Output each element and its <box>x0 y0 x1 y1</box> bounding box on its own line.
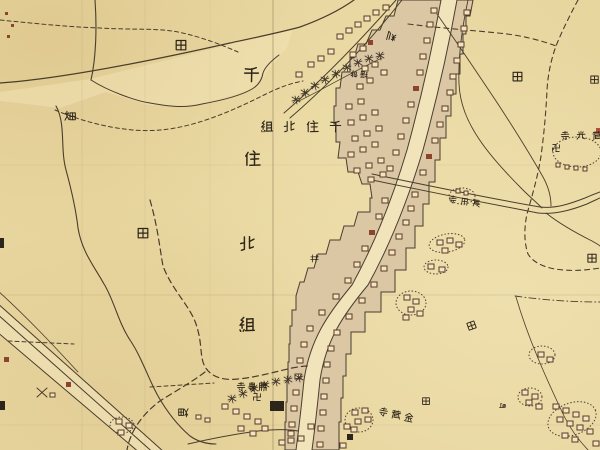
building-marker <box>297 358 303 363</box>
building-marker <box>360 115 366 120</box>
building-marker <box>348 120 354 125</box>
building-marker <box>371 282 377 287</box>
building-marker <box>318 56 324 61</box>
building-marker <box>360 147 366 152</box>
building-marker <box>593 441 599 446</box>
building-marker <box>413 86 419 91</box>
building-marker <box>458 42 464 47</box>
building-marker <box>355 22 361 27</box>
building-marker <box>427 22 433 27</box>
building-marker <box>296 72 302 77</box>
building-marker <box>373 10 379 15</box>
building-marker <box>360 46 366 51</box>
building-marker <box>447 90 453 95</box>
building-marker <box>577 425 583 430</box>
building-marker <box>547 357 553 362</box>
building-marker <box>317 442 323 447</box>
building-marker <box>403 220 409 225</box>
building-marker <box>291 406 297 411</box>
building-marker <box>196 415 201 419</box>
building-marker <box>557 417 563 422</box>
building-marker <box>454 58 460 63</box>
building-marker <box>464 10 470 15</box>
building-marker <box>116 419 122 424</box>
historical-map-canvas: 千住北組 <box>0 0 600 450</box>
building-marker <box>562 433 568 438</box>
building-marker <box>357 84 363 89</box>
building-marker <box>456 189 460 193</box>
building-marker <box>337 34 343 39</box>
building-marker <box>417 311 423 316</box>
building-marker <box>308 424 314 429</box>
building-marker <box>553 404 559 409</box>
building-marker <box>345 278 351 283</box>
building-marker <box>408 102 414 107</box>
building-marker <box>346 104 352 109</box>
building-marker <box>447 238 453 243</box>
building-marker <box>563 408 569 413</box>
building-marker <box>334 330 340 335</box>
building-marker <box>424 38 430 43</box>
building-marker <box>205 418 210 422</box>
building-marker <box>522 390 528 395</box>
building-marker <box>307 326 313 331</box>
building-marker <box>383 5 389 10</box>
building-marker <box>396 234 402 239</box>
building-marker <box>574 166 578 170</box>
building-marker <box>222 404 228 409</box>
building-marker <box>318 426 324 431</box>
building-marker <box>583 167 587 171</box>
building-marker <box>308 62 314 67</box>
building-marker <box>355 419 361 424</box>
building-marker <box>437 240 443 245</box>
building-marker <box>118 430 124 435</box>
building-marker <box>50 393 55 397</box>
building-marker <box>567 421 573 426</box>
building-marker <box>354 168 360 173</box>
building-marker <box>398 134 404 139</box>
building-marker <box>376 214 382 219</box>
building-marker <box>428 264 434 269</box>
building-marker <box>368 40 373 45</box>
building-marker <box>11 24 14 27</box>
building-marker <box>408 206 414 211</box>
building-marker <box>380 172 386 177</box>
building-marker <box>376 126 382 131</box>
building-marker <box>359 298 365 303</box>
building-marker <box>442 248 448 253</box>
building-marker <box>389 250 395 255</box>
building-marker <box>369 230 375 235</box>
building-marker <box>366 163 372 168</box>
building-marker <box>556 163 560 167</box>
building-marker <box>279 440 285 445</box>
building-marker <box>352 410 358 415</box>
building-marker <box>420 170 426 175</box>
building-marker <box>288 438 294 443</box>
building-marker <box>368 177 374 182</box>
building-marker <box>328 346 334 351</box>
building-marker <box>347 434 353 440</box>
map-svg <box>0 0 600 450</box>
building-marker <box>381 70 387 75</box>
building-marker <box>354 262 360 267</box>
building-marker <box>378 158 384 163</box>
building-marker <box>408 307 414 312</box>
building-marker <box>464 191 468 195</box>
building-marker <box>5 12 8 15</box>
building-marker <box>364 131 370 136</box>
building-marker <box>346 28 352 33</box>
building-marker <box>358 99 364 104</box>
building-marker <box>587 429 593 434</box>
building-marker <box>403 118 409 123</box>
building-marker <box>372 110 378 115</box>
building-marker <box>288 431 294 436</box>
building-marker <box>382 198 388 203</box>
building-marker <box>126 423 132 428</box>
building-marker <box>387 166 393 171</box>
building-marker <box>323 378 329 383</box>
building-marker <box>255 419 261 424</box>
building-marker <box>381 266 387 271</box>
building-marker <box>426 154 432 159</box>
building-marker <box>298 436 304 441</box>
building-marker <box>340 443 346 448</box>
building-marker <box>362 408 368 413</box>
building-marker <box>270 401 284 411</box>
building-marker <box>412 192 418 197</box>
building-marker <box>351 427 357 432</box>
building-marker <box>333 294 339 299</box>
building-marker <box>365 417 371 422</box>
building-marker <box>456 242 462 247</box>
building-marker <box>238 426 244 431</box>
building-marker <box>536 404 542 409</box>
building-marker <box>404 295 410 300</box>
building-marker <box>321 394 327 399</box>
building-marker <box>364 16 370 21</box>
building-marker <box>289 422 295 427</box>
building-marker <box>324 362 330 367</box>
building-marker <box>362 246 368 251</box>
building-marker <box>442 106 448 111</box>
building-marker <box>301 342 307 347</box>
building-marker <box>367 78 373 83</box>
building-marker <box>352 136 358 141</box>
building-marker <box>250 431 256 436</box>
building-marker <box>293 390 299 395</box>
building-marker <box>420 54 426 59</box>
building-marker <box>0 238 4 248</box>
building-marker <box>450 74 456 79</box>
building-marker <box>244 414 250 419</box>
building-marker <box>403 315 409 320</box>
building-marker <box>344 424 350 429</box>
building-marker <box>565 165 569 169</box>
building-marker <box>431 8 437 13</box>
building-marker <box>350 52 356 57</box>
building-marker <box>372 62 378 67</box>
building-marker <box>7 35 10 38</box>
building-marker <box>572 437 578 442</box>
building-marker <box>417 70 423 75</box>
building-marker <box>4 357 9 362</box>
building-marker <box>328 49 334 54</box>
building-marker <box>526 400 532 405</box>
building-marker <box>393 150 399 155</box>
building-marker <box>0 401 5 410</box>
building-marker <box>437 122 443 127</box>
building-marker <box>432 138 438 143</box>
building-marker <box>439 267 445 272</box>
building-marker <box>233 409 239 414</box>
building-marker <box>413 299 419 304</box>
building-marker <box>320 410 326 415</box>
building-marker <box>362 66 368 71</box>
building-marker <box>573 412 579 417</box>
building-marker <box>461 26 467 31</box>
building-marker <box>372 142 378 147</box>
building-marker <box>66 382 71 387</box>
building-marker <box>346 314 352 319</box>
building-marker <box>262 426 268 431</box>
building-marker <box>583 416 589 421</box>
building-marker <box>538 352 544 357</box>
building-marker <box>319 310 325 315</box>
building-marker <box>348 152 354 157</box>
building-marker <box>532 394 538 399</box>
